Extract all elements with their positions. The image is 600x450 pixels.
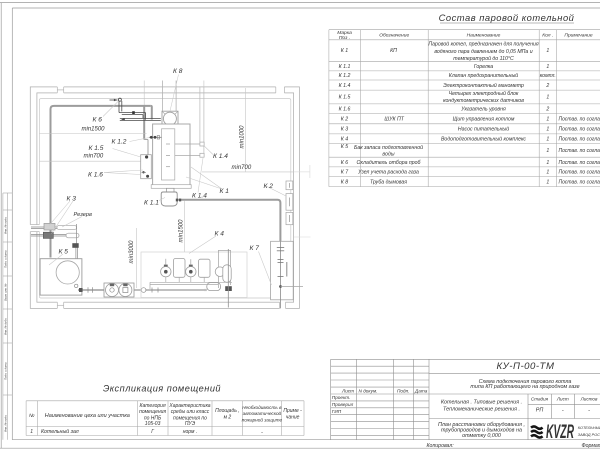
svg-text:1: 1 — [546, 169, 549, 175]
svg-text:Постав. по соглас: Постав. по соглас — [559, 127, 600, 133]
svg-text:среды или класс: среды или класс — [171, 409, 210, 415]
svg-text:кондуктометрических датчиков: кондуктометрических датчиков — [443, 98, 524, 104]
svg-text:К 1.5: К 1.5 — [339, 95, 351, 101]
svg-text:min700: min700 — [232, 165, 252, 171]
svg-text:Формат: Формат — [582, 443, 600, 449]
svg-text:Категория: Категория — [140, 403, 166, 409]
svg-text:Горелка: Горелка — [474, 64, 493, 70]
svg-text:Указатель уровня: Указатель уровня — [461, 106, 506, 112]
svg-text:КУ-П-00-ТМ: КУ-П-00-ТМ — [497, 361, 555, 372]
svg-text:N докум.: N докум. — [359, 388, 378, 393]
svg-text:Наименование цеха или участка: Наименование цеха или участка — [45, 413, 130, 419]
svg-text:К 1: К 1 — [220, 188, 230, 195]
svg-text:Площадь ,: Площадь , — [215, 408, 240, 414]
svg-text:К 8: К 8 — [173, 68, 183, 75]
svg-text:Наименование: Наименование — [467, 32, 501, 38]
svg-text:воды: воды — [382, 151, 394, 157]
svg-text:Четырех электродный блок: Четырех электродный блок — [449, 90, 519, 97]
svg-text:К 2: К 2 — [341, 116, 348, 122]
svg-text:К 1.2: К 1.2 — [112, 139, 127, 146]
svg-text:КП: КП — [390, 48, 397, 54]
svg-text:К 1.5: К 1.5 — [89, 145, 104, 152]
svg-text:Инв. № дубл.: Инв. № дубл. — [4, 318, 8, 335]
svg-text:Лист: Лист — [556, 397, 569, 402]
svg-text:К 1.1: К 1.1 — [339, 64, 351, 70]
svg-text:Лист: Лист — [341, 389, 354, 394]
svg-text:1: 1 — [546, 148, 549, 154]
svg-text:min700: min700 — [84, 154, 104, 160]
svg-text:Резерв: Резерв — [74, 212, 92, 218]
svg-text:Взам. инв. №: Взам. инв. № — [4, 284, 8, 301]
svg-text:Постав. по соглас: Постав. по соглас — [559, 160, 600, 166]
svg-text:К 2: К 2 — [264, 183, 274, 190]
svg-text:ШУК ПТ: ШУК ПТ — [384, 116, 404, 122]
svg-text:1: 1 — [546, 64, 549, 70]
svg-text:Листов: Листов — [580, 397, 598, 402]
svg-text:Тепломеханические решения .: Тепломеханические решения . — [443, 407, 520, 413]
svg-text:К 1: К 1 — [341, 48, 348, 54]
svg-text:min1500: min1500 — [179, 219, 185, 243]
svg-text:Постав. по соглас: Постав. по соглас — [559, 137, 600, 143]
svg-text:Стадия: Стадия — [531, 397, 549, 402]
svg-text:Приме -: Приме - — [283, 408, 302, 414]
svg-text:Щит управления котлом: Щит управления котлом — [453, 116, 515, 122]
svg-text:Постав. по соглас: Постав. по соглас — [559, 169, 600, 175]
svg-text:min1000: min1000 — [239, 125, 245, 149]
svg-text:К 5: К 5 — [341, 144, 348, 150]
svg-text:К 7: К 7 — [250, 245, 260, 252]
svg-text:Поз .: Поз . — [339, 35, 350, 41]
svg-text:типа КП работающего на природн: типа КП работающего на природном газе — [470, 384, 579, 390]
svg-text:температурой до 110°С: температурой до 110°С — [453, 55, 514, 62]
svg-text:К 8: К 8 — [341, 179, 348, 185]
svg-text:Труба дымовая: Труба дымовая — [370, 179, 407, 185]
svg-text:К 6: К 6 — [341, 160, 348, 166]
svg-text:Охладитель отбора проб: Охладитель отбора проб — [357, 160, 422, 166]
svg-text:1: 1 — [546, 48, 549, 54]
svg-text:min3000: min3000 — [129, 240, 135, 264]
svg-text:РП: РП — [536, 407, 544, 413]
svg-text:К 5: К 5 — [59, 249, 69, 256]
svg-text:пожарной защите: пожарной защите — [242, 417, 283, 423]
svg-text:Котельный зал: Котельный зал — [41, 428, 79, 435]
svg-text:Состав паровой котельной: Состав паровой котельной — [439, 12, 575, 23]
svg-text:Бак запаса подготовленной: Бак запаса подготовленной — [354, 144, 423, 151]
svg-text:К 4: К 4 — [215, 231, 225, 238]
svg-text:2: 2 — [545, 106, 549, 112]
svg-text:К 3: К 3 — [341, 127, 348, 133]
svg-text:водяного пара давлением до 0,0: водяного пара давлением до 0,05 МПа и — [434, 49, 532, 55]
svg-text:min1500: min1500 — [82, 127, 106, 133]
svg-text:Инв. № подл.: Инв. № подл. — [4, 216, 8, 234]
svg-text:К 7: К 7 — [341, 169, 349, 175]
svg-text:К 3: К 3 — [67, 195, 77, 202]
svg-text:Паровой котел, предназначен дл: Паровой котел, предназначен для получени… — [428, 41, 539, 48]
svg-text:Кол .: Кол . — [542, 32, 553, 38]
svg-text:Водоподготовительный комплекс: Водоподготовительный комплекс — [441, 136, 526, 143]
svg-text:Постав. по соглас: Постав. по соглас — [559, 116, 600, 122]
svg-text:Экспликация помещений: Экспликация помещений — [103, 384, 221, 394]
svg-text:чание: чание — [286, 414, 300, 420]
svg-text:Узел учета расхода газа: Узел учета расхода газа — [358, 169, 419, 175]
svg-text:К 1.6: К 1.6 — [88, 171, 103, 178]
svg-text:Проверил: Проверил — [332, 402, 354, 407]
svg-text:1: 1 — [546, 95, 549, 101]
svg-text:К 1.2: К 1.2 — [339, 73, 351, 79]
svg-text:К 1.6: К 1.6 — [339, 106, 351, 112]
svg-text:Насос питательный: Насос питательный — [458, 126, 509, 133]
svg-text:Клапан предохранительный: Клапан предохранительный — [449, 72, 519, 79]
svg-text:Дата: Дата — [414, 388, 428, 393]
svg-text:1: 1 — [546, 179, 549, 185]
svg-text:1: 1 — [546, 116, 549, 122]
svg-text:-: - — [562, 407, 564, 413]
svg-text:1: 1 — [546, 137, 549, 143]
svg-text:К 1.4: К 1.4 — [192, 192, 207, 199]
svg-text:ПУЭ: ПУЭ — [185, 421, 196, 427]
svg-text:ГИП: ГИП — [332, 409, 342, 414]
svg-text:Обозначение: Обозначение — [379, 32, 409, 38]
svg-text:помещения: помещения — [139, 409, 166, 415]
svg-text:№: № — [29, 413, 35, 419]
svg-text:Проект.: Проект. — [332, 395, 351, 400]
svg-text:1: 1 — [546, 160, 549, 166]
svg-text:К 1.1: К 1.1 — [144, 200, 159, 207]
svg-text:автоматической: автоматической — [243, 410, 282, 416]
svg-text:Подп.: Подп. — [397, 388, 409, 393]
svg-text:К 1.4: К 1.4 — [213, 153, 228, 160]
svg-text:-: - — [588, 407, 590, 413]
svg-text:отметку 0,000: отметку 0,000 — [462, 433, 501, 439]
svg-text:Постав. по соглас: Постав. по соглас — [559, 148, 600, 154]
svg-text:К 4: К 4 — [341, 137, 348, 143]
svg-text:Копировал:: Копировал: — [427, 443, 455, 449]
svg-text:1: 1 — [30, 429, 33, 435]
svg-text:Подп. и дата: Подп. и дата — [4, 250, 8, 268]
svg-text:1: 1 — [546, 127, 549, 133]
svg-text:К 1.4: К 1.4 — [339, 83, 351, 89]
svg-text:К 6: К 6 — [93, 116, 103, 123]
svg-text:Примечание: Примечание — [564, 32, 592, 38]
svg-text:Постав. по соглас: Постав. по соглас — [559, 179, 600, 185]
svg-text:м 2: м 2 — [224, 414, 232, 420]
svg-text:Котельная . Типовые решения .: Котельная . Типовые решения . — [441, 399, 522, 405]
svg-text:Характеристика: Характеристика — [168, 403, 210, 409]
svg-text:Электроконтактный манометр: Электроконтактный манометр — [443, 82, 524, 89]
svg-text:норм .: норм . — [183, 429, 197, 435]
svg-text:Подп. и дата: Подп. и дата — [4, 362, 8, 380]
svg-text:КОТЕЛЬНЫЙ: КОТЕЛЬНЫЙ — [578, 426, 600, 430]
svg-text:компл.: компл. — [540, 73, 556, 79]
svg-text:Инв. № подл.: Инв. № подл. — [4, 414, 8, 432]
svg-text:2: 2 — [545, 83, 549, 89]
svg-text:KVZR: KVZR — [546, 422, 574, 443]
svg-text:ЗАВОД РОССИИ: ЗАВОД РОССИИ — [578, 433, 600, 437]
svg-text:Необходимость в: Необходимость в — [242, 405, 282, 410]
svg-text:105-03: 105-03 — [145, 421, 161, 427]
